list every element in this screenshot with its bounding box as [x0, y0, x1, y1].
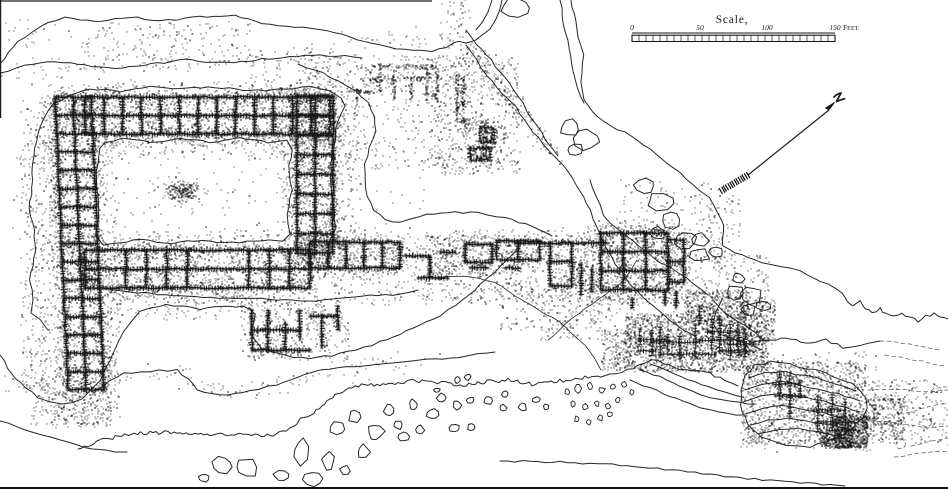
svg-text:50: 50	[696, 23, 704, 32]
svg-text:FEET.: FEET.	[843, 23, 860, 32]
svg-text:150: 150	[829, 23, 841, 32]
svg-text:Scale,: Scale,	[716, 14, 749, 26]
svg-text:0: 0	[630, 23, 634, 32]
svg-text:100: 100	[761, 23, 773, 32]
